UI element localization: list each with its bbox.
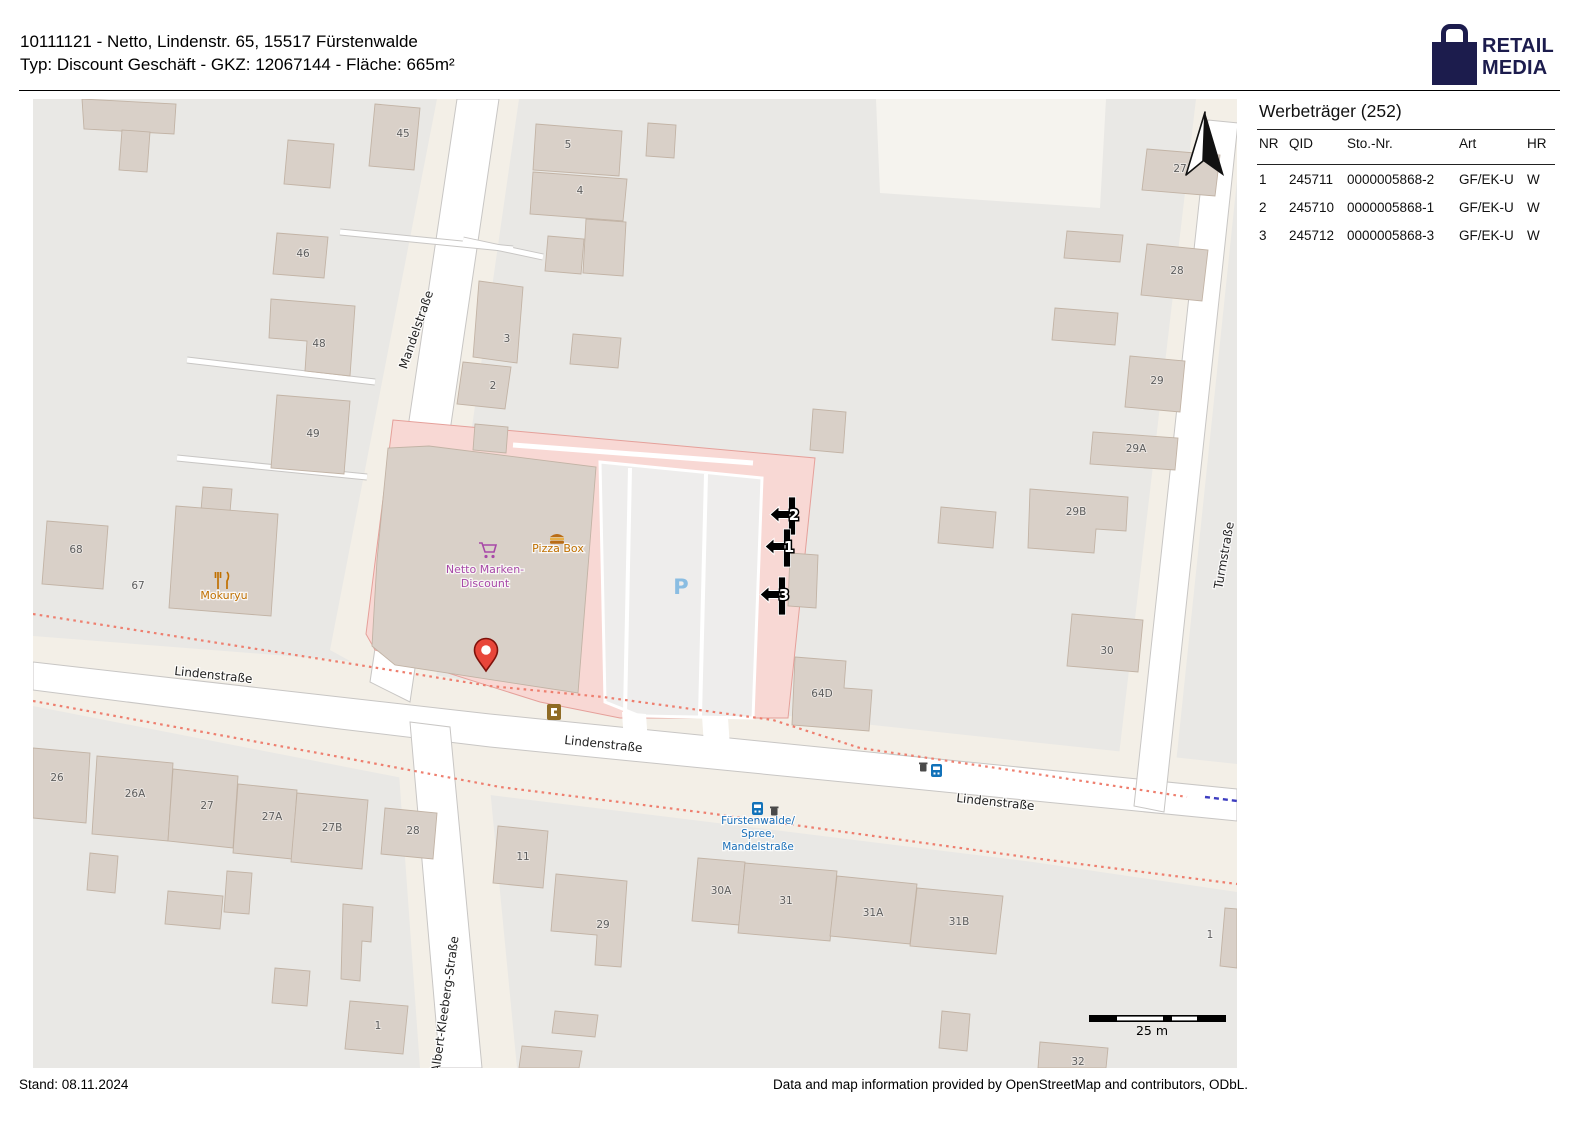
table-cell: W <box>1525 228 1555 243</box>
burger-icon <box>550 534 564 544</box>
table-cell: 3 <box>1257 228 1287 243</box>
shopping-bag-handle-icon <box>1441 24 1468 43</box>
house-number-label: 26 <box>50 772 64 784</box>
table-column-header: HR <box>1525 136 1555 151</box>
scale-label: 25 m <box>1136 1023 1168 1038</box>
store-subtitle: Typ: Discount Geschäft - GKZ: 12067144 -… <box>20 53 455 76</box>
table-column-header: Sto.-Nr. <box>1345 136 1457 151</box>
poi-label: Mokuryu <box>200 589 247 602</box>
table-cell: W <box>1525 172 1555 187</box>
table-cell: 245712 <box>1287 228 1345 243</box>
marker-number-label: 1 <box>784 538 794 556</box>
table-row: 22457100000005868-1GF/EK-UW <box>1257 193 1555 221</box>
house-number-label: 27B <box>322 822 343 834</box>
table-column-header: NR <box>1257 136 1287 151</box>
retail-media-logo: RETAIL MEDIA <box>1432 22 1562 88</box>
map-canvas[interactable]: 454648493254686727282929A29B3064D2626A27… <box>33 99 1237 1068</box>
poi-label: Netto Marken- <box>446 563 524 576</box>
house-number-label: 29A <box>1126 443 1147 455</box>
marker-number-label: 3 <box>779 586 789 604</box>
house-number-label: 11 <box>516 851 529 863</box>
logo-text: RETAIL MEDIA <box>1482 36 1554 79</box>
house-number-label: 1 <box>1207 929 1214 941</box>
table-cell: GF/EK-U <box>1457 228 1525 243</box>
page: 10111121 - Netto, Lindenstr. 65, 15517 F… <box>0 0 1587 1123</box>
house-number-label: 49 <box>306 428 319 440</box>
table-cell: GF/EK-U <box>1457 200 1525 215</box>
house-number-label: 31A <box>863 907 884 919</box>
parking-label: P <box>673 575 688 599</box>
panel-title: Werbeträger (252) <box>1259 101 1555 122</box>
house-number-label: 27A <box>262 811 283 823</box>
table-cell: 0000005868-3 <box>1345 228 1457 243</box>
store-title: 10111121 - Netto, Lindenstr. 65, 15517 F… <box>20 30 455 53</box>
house-number-label: 45 <box>396 128 409 140</box>
house-number-label: 4 <box>577 185 584 197</box>
house-number-label: 31 <box>779 895 792 907</box>
table-cell: 245710 <box>1287 200 1345 215</box>
table-row: 32457120000005868-3GF/EK-UW <box>1257 221 1555 249</box>
house-number-label: 31B <box>949 916 970 928</box>
waste-basket-icon <box>770 807 779 816</box>
table-header-row: NRQIDSto.-Nr.ArtHR <box>1257 130 1555 157</box>
house-number-label: 29 <box>1150 375 1163 387</box>
shopping-bag-icon <box>1432 42 1477 85</box>
house-number-label: 3 <box>504 333 511 345</box>
house-number-label: 32 <box>1071 1056 1084 1068</box>
table-cell: 245711 <box>1287 172 1345 187</box>
house-number-label: 2 <box>490 380 497 392</box>
logo-line2: MEDIA <box>1482 58 1554 80</box>
house-number-label: 26A <box>125 788 146 800</box>
report-header: 10111121 - Netto, Lindenstr. 65, 15517 F… <box>20 30 455 76</box>
bus-stop-label: Spree, <box>741 828 775 840</box>
house-number-label: 27 <box>200 800 213 812</box>
werbetraeger-panel: Werbeträger (252) NRQIDSto.-Nr.ArtHR 124… <box>1257 101 1555 249</box>
table-column-header: QID <box>1287 136 1345 151</box>
poi-label: Discount <box>461 577 510 590</box>
house-number-label: 64D <box>811 688 832 700</box>
house-number-label: 1 <box>375 1020 382 1032</box>
table-cell: GF/EK-U <box>1457 172 1525 187</box>
house-number-label: 30 <box>1100 645 1113 657</box>
bus-stop-label: Fürstenwalde/ <box>721 815 795 827</box>
house-number-label: 28 <box>1170 265 1183 277</box>
table-cell: 1 <box>1257 172 1287 187</box>
kiosk-icon <box>547 704 561 720</box>
house-number-label: 67 <box>131 580 144 592</box>
map-attribution: Data and map information provided by Ope… <box>0 1077 1248 1092</box>
house-number-label: 30A <box>711 885 732 897</box>
house-number-label: 29B <box>1066 506 1087 518</box>
table-row: 12457110000005868-2GF/EK-UW <box>1257 165 1555 193</box>
bus-stop-icon <box>752 802 763 815</box>
table-cell: 0000005868-2 <box>1345 172 1457 187</box>
poi-label: Pizza Box <box>532 542 584 555</box>
table-cell: 0000005868-1 <box>1345 200 1457 215</box>
bus-stop-icon <box>931 764 942 777</box>
table-body: 12457110000005868-2GF/EK-UW2245710000000… <box>1257 165 1555 249</box>
logo-line1: RETAIL <box>1482 36 1554 58</box>
table-cell: 2 <box>1257 200 1287 215</box>
house-number-label: 48 <box>312 338 325 350</box>
marker-number-label: 2 <box>789 506 799 524</box>
waste-basket-icon <box>919 763 928 772</box>
table-cell: W <box>1525 200 1555 215</box>
house-number-label: 46 <box>296 248 310 260</box>
header-divider <box>19 90 1560 91</box>
bus-stop-label: Mandelstraße <box>722 841 794 853</box>
house-number-label: 27 <box>1173 163 1186 175</box>
house-number-label: 5 <box>565 139 572 151</box>
house-number-label: 28 <box>406 825 419 837</box>
house-number-label: 68 <box>69 544 82 556</box>
house-number-label: 29 <box>596 919 609 931</box>
table-column-header: Art <box>1457 136 1525 151</box>
